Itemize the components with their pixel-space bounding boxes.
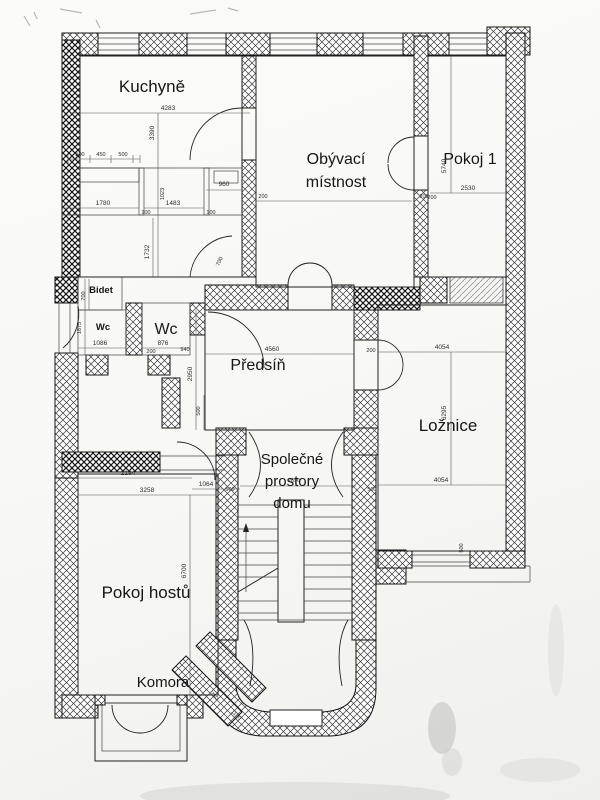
label-obyvaci-line1: Obývací: [307, 151, 366, 168]
wall-segment: [216, 455, 238, 640]
wall-segment: [354, 390, 378, 430]
dim-k100a: 100: [141, 210, 150, 216]
wall-segment: [420, 277, 447, 303]
chimney-niche: [450, 277, 503, 303]
dim-common500l: 500: [225, 487, 234, 493]
wall-segment: [148, 355, 170, 375]
wall-segment: [378, 551, 412, 568]
label-kuchyne: Kuchyně: [119, 77, 185, 96]
door-balcony-leaf: [140, 705, 168, 733]
label-spolecne-line3: domu: [273, 495, 311, 512]
dim-door700: 700: [215, 256, 224, 267]
door-hall-loznice-leaf: [378, 340, 403, 365]
wall-segment: [352, 455, 376, 640]
wall-segment: [242, 160, 256, 277]
dim-bed4054-top: 4054: [435, 344, 450, 351]
dim-wc876: 876: [158, 340, 169, 347]
dim-guest6700: 6700: [181, 563, 188, 578]
label-pokoj-hostu: Pokoj hostů: [102, 583, 191, 602]
label-wc-small: Wc: [96, 322, 110, 333]
paper-artifacts: [24, 8, 580, 800]
dim-k1780: 1780: [96, 200, 111, 207]
dim-k500b: 500: [118, 152, 127, 158]
door-kitchen-corridor: [190, 236, 232, 277]
wall-segment: [55, 277, 78, 303]
dim-guest3258: 3258: [140, 487, 155, 494]
wall-segment: [95, 695, 105, 705]
floor-plan-drawing: Kuchyně Obývací místnost Pokoj 1 Bidet W…: [0, 0, 600, 800]
dim-k1483: 1483: [166, 200, 181, 207]
dim-hall2950: 2950: [187, 366, 194, 381]
label-spolecne-line1: Společné: [261, 451, 324, 468]
door-common-leaf: [249, 432, 261, 497]
door-hall-living-leaf: [310, 263, 332, 285]
dim-bed500b: 500: [459, 543, 465, 552]
dim-guest1064: 1064: [199, 481, 214, 488]
scanned-floor-plan: Kuchyně Obývací místnost Pokoj 1 Bidet W…: [0, 0, 600, 800]
wall-segment: [317, 33, 363, 55]
wall-segment: [190, 303, 205, 335]
stair-exit-door: [270, 710, 322, 726]
dim-bed6295: 6295: [441, 405, 448, 420]
dim-hall500: 500: [196, 406, 202, 415]
wall-segment: [216, 428, 246, 455]
label-wc-large: Wc: [154, 321, 177, 338]
wall-segment: [470, 551, 525, 568]
stair-treads: [238, 505, 352, 613]
dim-living200l: 200: [258, 194, 267, 200]
label-loznice: Ložnice: [419, 416, 478, 435]
stair-break-line: [238, 568, 278, 592]
dim-pokoj1-200: 200: [427, 195, 436, 201]
dim-bed4054-bottom: 4054: [434, 477, 449, 484]
label-obyvaci-line2: místnost: [306, 174, 367, 191]
dim-k450: 450: [96, 152, 105, 158]
dim-bidet700: 700: [81, 291, 87, 300]
stairs: [238, 500, 352, 686]
dim-wc1086: 1086: [93, 340, 108, 347]
dim-pokoj1-5740: 5740: [441, 158, 448, 173]
dim-k1732: 1732: [144, 244, 151, 259]
dim-hall200: 200: [366, 348, 375, 354]
wall-segment: [242, 56, 256, 108]
stair-landing-curve: [339, 620, 348, 686]
wall-segment: [162, 378, 180, 428]
wall-segment: [344, 428, 378, 455]
label-predsin: Předsíň: [230, 357, 285, 374]
walls: [55, 27, 530, 736]
label-bidet: Bidet: [89, 285, 114, 296]
wall-segment: [62, 452, 160, 472]
dim-hall4560: 4560: [265, 346, 280, 353]
label-pokoj1: Pokoj 1: [443, 151, 496, 168]
dim-kuchyne-width: 4283: [161, 105, 176, 112]
room-labels: Kuchyně Obývací místnost Pokoj 1 Bidet W…: [89, 77, 497, 691]
stair-stringer: [278, 500, 304, 622]
dim-wc1875: 1875: [77, 322, 83, 334]
wall-segment: [506, 33, 525, 561]
door-living-pokoj1-leaf: [388, 164, 414, 190]
stair-direction-arrow: [243, 523, 249, 532]
wall-segment: [86, 355, 108, 375]
dim-k960: 960: [219, 181, 230, 188]
wall-segment: [414, 36, 428, 136]
wall-segment: [62, 40, 80, 277]
door-kitchen-living: [190, 108, 242, 160]
wall-segment: [62, 695, 98, 718]
wall-segment: [139, 33, 187, 55]
door-hall-loznice-leaf: [378, 365, 403, 390]
dim-kuchyne-height: 3390: [149, 125, 156, 140]
balcony-bay: [95, 695, 187, 761]
wall-segment: [354, 310, 378, 340]
label-komora: Komora: [137, 674, 190, 691]
wall-segment: [205, 285, 288, 310]
dim-k500a: 500: [75, 152, 84, 158]
wall-segment: [177, 695, 187, 705]
wall-segment: [414, 190, 428, 277]
dim-wc200: 200: [146, 349, 155, 355]
door-common-leaf: [332, 432, 344, 497]
wall-segment: [354, 287, 420, 310]
dim-k100b: 100: [206, 210, 215, 216]
wall-segment: [332, 285, 354, 310]
door-balcony-leaf: [112, 705, 140, 733]
dim-common2696: 2696: [288, 478, 300, 484]
dim-bed500a: 500: [367, 487, 376, 493]
wall-segment: [226, 33, 270, 55]
door-living-pokoj1-leaf: [388, 137, 414, 163]
dim-pokoj1-2530: 2530: [461, 185, 476, 192]
dim-k1023: 1023: [160, 188, 166, 200]
dim-guest2194: 2194: [121, 470, 136, 477]
wall-segment: [55, 478, 78, 718]
dim-wc940: 940: [180, 347, 189, 353]
wall-segment: [126, 303, 142, 355]
door-hall-living-leaf: [288, 263, 310, 285]
